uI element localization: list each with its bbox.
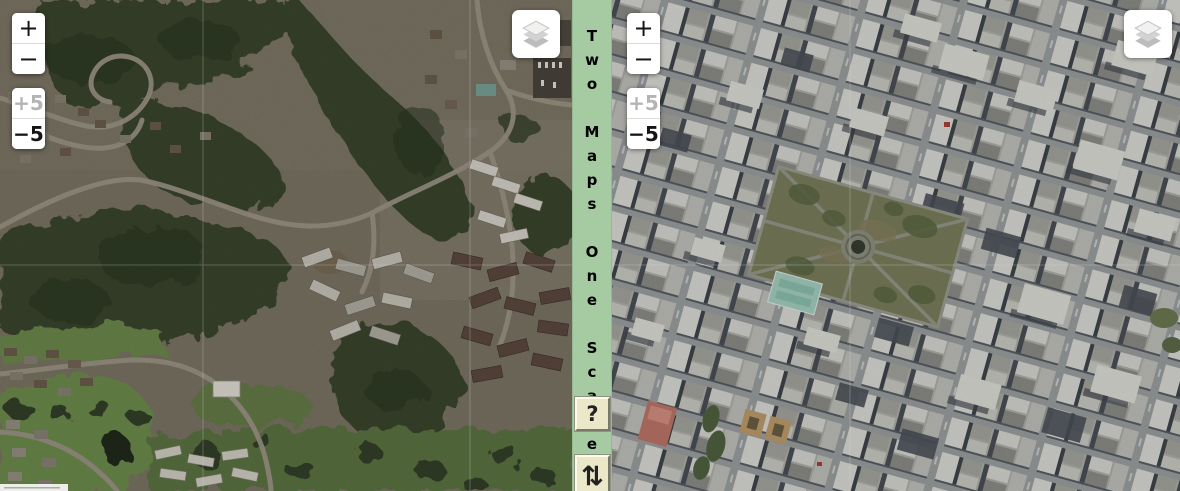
right-zoom-in-button[interactable]: + — [627, 13, 660, 43]
left-zoom-minus5-button[interactable]: −5 — [12, 119, 45, 149]
right-zoom-plus5-button[interactable]: +5 — [627, 88, 660, 118]
left-zoom-plus5-button[interactable]: +5 — [12, 88, 45, 118]
left-zoom5-control: +5 −5 — [12, 88, 45, 149]
right-layers-button[interactable] — [1124, 10, 1172, 58]
layers-icon — [519, 17, 553, 51]
right-zoom-minus5-button[interactable]: −5 — [627, 119, 660, 149]
right-zoom5-control: +5 −5 — [627, 88, 660, 149]
right-zoom-out-button[interactable]: − — [627, 44, 660, 74]
attribution-fragment — [0, 484, 68, 491]
left-zoom-in-button[interactable]: + — [12, 13, 45, 43]
two-maps-app: + − +5 −5 Two Maps One Scale ? ⇄ — [0, 0, 1180, 491]
help-button[interactable]: ? — [575, 397, 610, 431]
left-map-pane[interactable]: + − +5 −5 — [0, 0, 572, 491]
left-layers-button[interactable] — [512, 10, 560, 58]
swap-maps-button[interactable]: ⇄ — [575, 455, 610, 491]
right-zoom-control: + − — [627, 13, 660, 74]
app-title: Two Maps One Scale — [583, 27, 601, 459]
right-map-pane[interactable]: + − +5 −5 — [612, 0, 1180, 491]
swap-maps-arrows-icon: ⇄ — [577, 464, 608, 487]
left-zoom-out-button[interactable]: − — [12, 44, 45, 74]
center-divider-panel: Two Maps One Scale ? ⇄ — [572, 0, 612, 491]
left-zoom-control: + − — [12, 13, 45, 74]
layers-icon — [1131, 17, 1165, 51]
left-map-satellite-imagery — [0, 0, 572, 491]
right-map-satellite-imagery — [612, 0, 1180, 491]
